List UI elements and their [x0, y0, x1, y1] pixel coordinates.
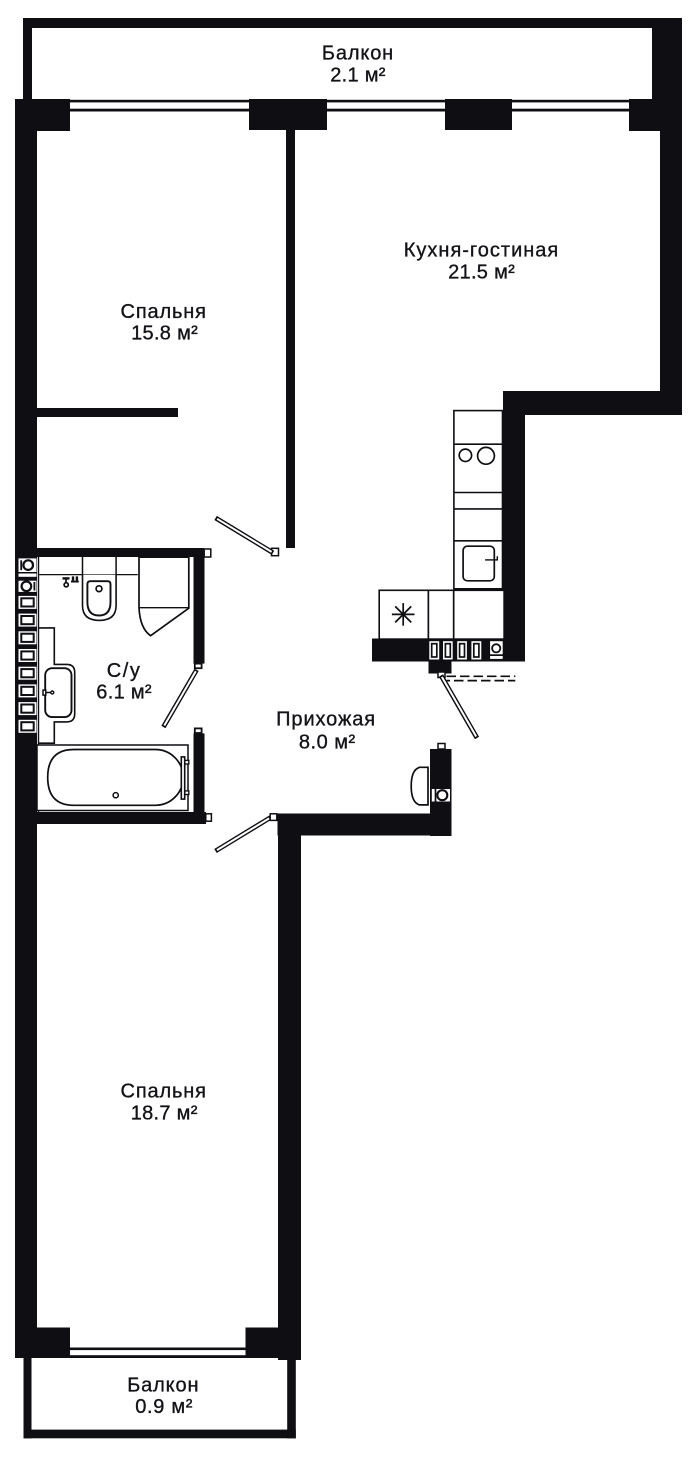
- svg-text:15.8 м²: 15.8 м²: [131, 323, 198, 345]
- svg-text:Балкон: Балкон: [322, 43, 394, 65]
- svg-text:Кухня-гостиная: Кухня-гостиная: [404, 240, 560, 262]
- svg-text:Спальня: Спальня: [121, 301, 207, 323]
- svg-text:21.5 м²: 21.5 м²: [448, 261, 515, 283]
- svg-text:0.9 м²: 0.9 м²: [135, 1396, 193, 1418]
- svg-text:Балкон: Балкон: [127, 1375, 199, 1397]
- svg-text:6.1 м²: 6.1 м²: [96, 681, 152, 703]
- svg-text:С/у: С/у: [107, 660, 142, 682]
- svg-text:2.1 м²: 2.1 м²: [330, 64, 386, 86]
- svg-text:18.7 м²: 18.7 м²: [131, 1103, 198, 1125]
- svg-text:Прихожая: Прихожая: [276, 709, 376, 731]
- svg-text:Спальня: Спальня: [121, 1081, 207, 1103]
- svg-text:8.0 м²: 8.0 м²: [299, 732, 356, 754]
